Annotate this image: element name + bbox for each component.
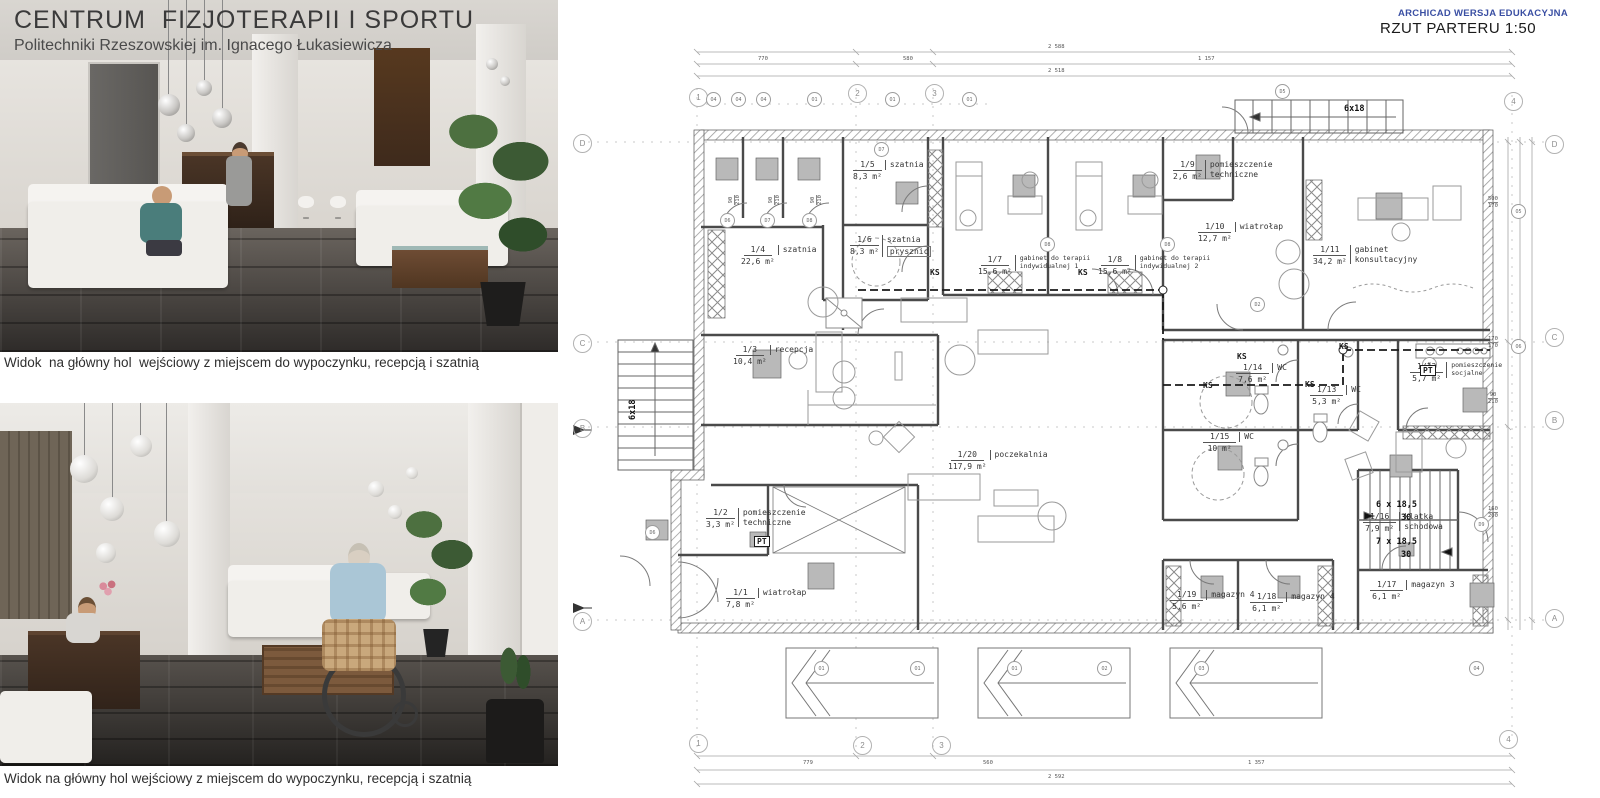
window-marker: O1	[807, 92, 822, 107]
pt-label: PT	[1420, 365, 1436, 376]
photo2-receptionist-body	[66, 613, 100, 643]
opening-size: 90210	[728, 195, 741, 205]
photo1-sofa-left	[28, 202, 228, 288]
ks-label: KS	[1339, 342, 1349, 351]
window-marker: O2	[1097, 661, 1112, 676]
photo1-person-man-body	[140, 203, 182, 243]
photo2-column-left	[188, 403, 230, 657]
photo2-tall-plant-stems	[498, 641, 534, 703]
pt-label: PT	[754, 536, 770, 547]
door-marker: D2	[1250, 297, 1265, 312]
dim-bottom-total: 2 592	[1048, 774, 1065, 780]
lamp-wire	[140, 403, 141, 437]
room-label-1-10: 1/1012,7 m² wiatrołap	[1198, 222, 1283, 243]
caption-photo-1: Widok na główny hol wejściowy z miejscem…	[4, 355, 556, 370]
room-label-1-13: 1/135,3 m² WC	[1310, 385, 1361, 406]
grid-bubble-A-right: A	[1545, 609, 1564, 628]
room-label-1-8: 1/815,6 m² gabinet do terapiiindywidualn…	[1098, 255, 1210, 276]
photo2-elderly-woman-body	[330, 563, 386, 623]
photo1-bar-stool	[298, 196, 314, 208]
room-label-1-3: 1/310,4 m² recepcja	[733, 345, 813, 366]
grid-bubble-4: 4	[1504, 92, 1523, 111]
room-label-1-7: 1/715,6 m² gabinet do terapiiindywidualn…	[978, 255, 1090, 276]
grid-bubble-B: B	[573, 419, 592, 438]
grid-bubble-D: D	[573, 134, 592, 153]
room-label-1-2: 1/23,3 m² pomieszczenietechniczne	[706, 508, 806, 529]
dim-bottom: 1 357	[1248, 760, 1265, 766]
pendant-lamp	[212, 108, 232, 128]
photo2-flowers	[96, 579, 120, 597]
photo1-plant-leaves	[438, 92, 556, 290]
room-label-1-11: 1/1134,2 m² gabinetkonsultacyjny	[1313, 245, 1417, 266]
grid-bubble-1b: 1	[689, 734, 708, 753]
room-label-1-6: 1/68,3 m² szatniaprysznic	[850, 235, 931, 257]
lamp-wire	[112, 403, 113, 499]
floor-plan: ARCHICAD WERSJA EDUKACYJNA RZUT PARTERU …	[558, 0, 1600, 798]
photo2-plant-leaves	[396, 487, 476, 637]
door-marker: D5	[1275, 84, 1290, 99]
door-marker: D9	[1474, 517, 1489, 532]
plan-drawing	[558, 0, 1600, 798]
room-label-1-9: 1/92,6 m² pomieszczenietechniczne	[1173, 160, 1273, 181]
room-label-1-4: 1/422,6 m² szatnia	[741, 245, 816, 266]
opening-size: 90210	[1488, 392, 1498, 405]
grid-bubble-4b: 4	[1499, 730, 1518, 749]
dim-top-total: 2 588	[1048, 44, 1065, 50]
window-marker: O1	[885, 92, 900, 107]
room-label-1-19: 1/195,6 m² magazyn 4	[1170, 590, 1255, 611]
stair-riser-note: 6x18	[1344, 104, 1364, 114]
window-marker: O1	[814, 661, 829, 676]
door-marker: D8	[1160, 237, 1175, 252]
project-title: CENTRUM FIZJOTERAPII I SPORTU	[14, 6, 474, 35]
stair-riser-note: 6x18	[628, 400, 638, 420]
photo1-wood-panel	[374, 48, 430, 166]
dim-top: 1 157	[1198, 56, 1215, 62]
stair-run-note: 6 x 18,5	[1376, 500, 1417, 510]
photo2-sofa-corner	[0, 691, 92, 763]
grid-bubble-C-right: C	[1545, 328, 1564, 347]
presentation-board: CENTRUM FIZJOTERAPII I SPORTU Politechni…	[0, 0, 1600, 798]
photo2-tall-plant-pot	[486, 699, 544, 763]
window-marker: O1	[1007, 661, 1022, 676]
grid-bubble-2: 2	[848, 84, 867, 103]
photo2-slat-wall	[0, 431, 72, 619]
dim-bottom: 560	[983, 760, 993, 766]
window-marker: O4	[731, 92, 746, 107]
window-marker: O6	[1511, 339, 1526, 354]
dim-bottom: 779	[803, 760, 813, 766]
pendant-lamp	[70, 455, 98, 483]
door-marker: D6	[720, 213, 735, 228]
caption-photo-2: Widok na główny hol wejściowy z miejscem…	[4, 771, 556, 786]
window-marker: O4	[1469, 661, 1484, 676]
room-label-1-14: 1/147,6 m² WC	[1236, 363, 1287, 384]
door-marker: D8	[1040, 237, 1055, 252]
window-marker: O1	[910, 661, 925, 676]
photo1-person-woman-body	[226, 156, 252, 206]
stair-rise-note: 30	[1401, 513, 1411, 523]
project-subtitle: Politechniki Rzeszowskiej im. Ignacego Ł…	[14, 37, 474, 55]
pendant-lamp	[154, 521, 180, 547]
grid-bubble-A: A	[573, 612, 592, 631]
dim-top: 580	[903, 56, 913, 62]
window-marker: O4	[706, 92, 721, 107]
pendant-lamp	[500, 76, 510, 86]
grid-bubble-3: 3	[925, 84, 944, 103]
room-label-1-1: 1/17,8 m² wiatrołap	[726, 588, 806, 609]
lamp-wire	[84, 403, 85, 457]
render-photo-hall-2	[0, 403, 558, 766]
window-marker: O4	[756, 92, 771, 107]
door-marker: D6	[645, 525, 660, 540]
pendant-lamp	[96, 543, 116, 563]
pendant-lamp	[486, 58, 498, 70]
pendant-lamp	[368, 481, 384, 497]
door-marker: D7	[874, 142, 889, 157]
ks-label: KS	[1237, 352, 1247, 361]
opening-size: 160200	[1488, 506, 1498, 519]
photo2-plaid-blanket	[322, 619, 396, 671]
window-marker: O5	[1511, 204, 1526, 219]
photo1-bar-stool	[330, 196, 346, 208]
room-label-1-18: 1/186,1 m² magazyn 4	[1250, 592, 1335, 613]
grid-bubble-2b: 2	[853, 736, 872, 755]
grid-bubble-C: C	[573, 334, 592, 353]
dim-top: 770	[758, 56, 768, 62]
ks-label: KS	[930, 268, 940, 277]
photo1-person-man-legs	[146, 240, 182, 256]
grid-bubble-B-right: B	[1545, 411, 1564, 430]
ks-label: KS	[1305, 380, 1315, 389]
pendant-lamp	[158, 94, 180, 116]
project-title-block: CENTRUM FIZJOTERAPII I SPORTU Politechni…	[14, 6, 474, 55]
photo2-wheelchair-smallwheel	[392, 701, 418, 727]
ks-label: KS	[1203, 381, 1213, 390]
lamp-wire	[166, 403, 167, 523]
stair-run-note: 7 x 18,5	[1376, 537, 1417, 547]
pendant-lamp	[196, 80, 212, 96]
pendant-lamp	[177, 124, 195, 142]
window-marker: O1	[962, 92, 977, 107]
room-label-1-15: 1/1510 m² WC	[1203, 432, 1254, 453]
opening-size: 170170	[1488, 336, 1498, 349]
dim-top-2: 2 518	[1048, 68, 1065, 74]
opening-size: 90210	[810, 195, 823, 205]
room-label-1-17: 1/176,1 m² magazyn 3	[1370, 580, 1455, 601]
pendant-lamp	[100, 497, 124, 521]
opening-size: 90210	[768, 195, 781, 205]
pendant-lamp	[388, 505, 402, 519]
opening-size: 500170	[1488, 196, 1498, 209]
ks-label: KS	[1078, 268, 1088, 277]
window-marker: O3	[1194, 661, 1209, 676]
pendant-lamp	[130, 435, 152, 457]
room-label-1-5: 1/58,3 m² szatnia	[853, 160, 924, 181]
door-marker: D8	[802, 213, 817, 228]
room-label-1-20: 1/20117,9 m² poczekalnia	[948, 450, 1048, 471]
grid-bubble-3b: 3	[932, 736, 951, 755]
pendant-lamp	[406, 467, 418, 479]
stair-rise-note: 30	[1401, 550, 1411, 560]
grid-bubble-D-right: D	[1545, 135, 1564, 154]
door-marker: D7	[760, 213, 775, 228]
